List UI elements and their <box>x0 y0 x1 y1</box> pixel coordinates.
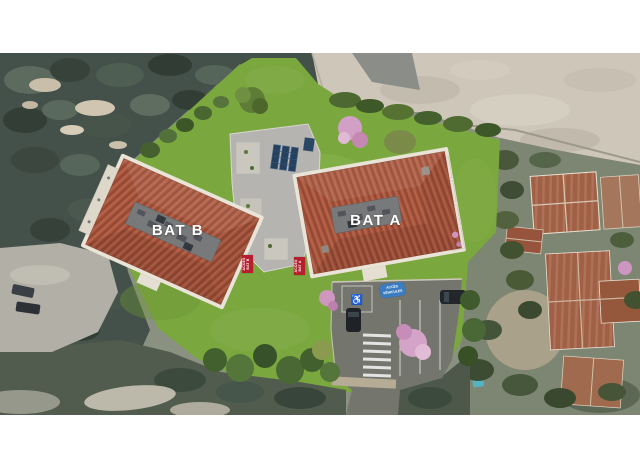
roof-terrace <box>264 238 288 260</box>
olive-tree <box>312 340 332 360</box>
access-bat-b-line2: BAT B <box>246 255 250 273</box>
neighbor-house <box>600 175 640 230</box>
handicap-parking-icon: ♿ <box>351 293 363 306</box>
chimney <box>421 166 430 175</box>
access-bat-a-label: ACCÈS BAT A <box>294 257 305 275</box>
solar-panels <box>270 144 298 171</box>
car <box>346 308 361 332</box>
site-plan-render: ♿ <box>0 0 640 470</box>
roof-terrace <box>236 142 260 174</box>
chimney <box>321 245 329 253</box>
aerial-photo: ♿ <box>0 53 640 415</box>
solar-panels <box>303 137 315 151</box>
olive-tree <box>384 130 416 154</box>
building-b-label: BAT B <box>138 222 218 239</box>
neighbor-house <box>530 172 600 234</box>
access-bat-b-label: ACCÈS BAT B <box>242 255 253 273</box>
access-bat-a-line2: BAT A <box>298 257 302 275</box>
aerial-scene: ♿ <box>0 53 640 415</box>
building-a-label: BAT A <box>336 212 416 229</box>
